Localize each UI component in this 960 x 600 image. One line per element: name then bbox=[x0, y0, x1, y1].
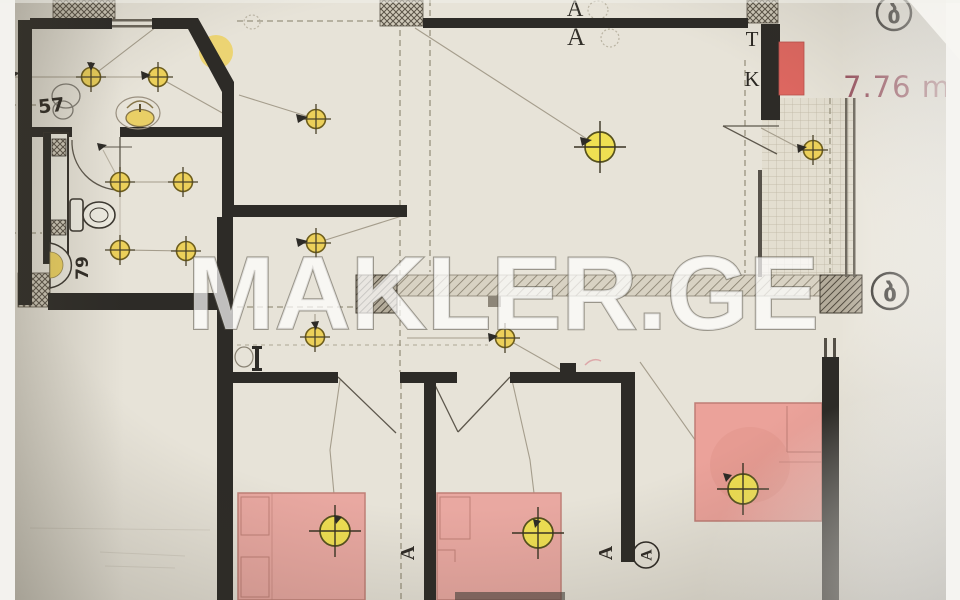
photo-effects bbox=[0, 0, 960, 600]
floor-plan-photo: 57 79 T K A A A A A ბ ბ 7.76 m² MAKLER.G… bbox=[0, 0, 960, 600]
photo-margin-right bbox=[946, 0, 960, 600]
photo-margin-left bbox=[0, 0, 15, 600]
floor-plan-drawing: 57 79 T K A A A A A ბ ბ 7.76 m² MAKLER.G… bbox=[0, 0, 960, 600]
